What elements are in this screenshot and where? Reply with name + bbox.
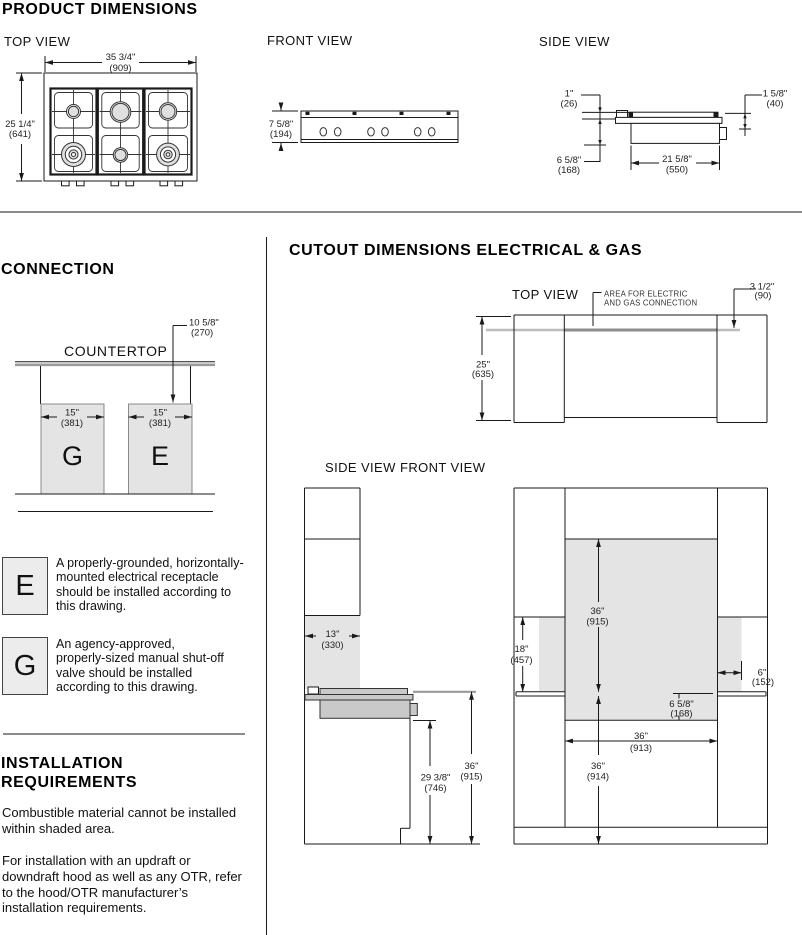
dim-cutout-depth-mm: (635) (472, 369, 494, 380)
spec-sheet-page: PRODUCT DIMENSIONS TOP VIEW FRONT VIEW S… (0, 0, 802, 935)
dim-g-width-mm: (381) (61, 418, 83, 429)
cutout-side-view-drawing: 13" (330) 29 3/8" (746) 36" (915) (305, 488, 483, 844)
dim-drop-mm: (270) (191, 328, 213, 339)
product-feet (62, 181, 183, 186)
dim-front-below-mm: (168) (670, 709, 692, 720)
dim-g-width-in: 15" (65, 408, 79, 419)
dim-side-cab-mm: (746) (424, 783, 446, 794)
dim-top-depth-mm: (641) (9, 129, 31, 140)
dim-front-height-mm: (914) (587, 772, 609, 783)
dim-front-height-mm: (194) (270, 129, 292, 140)
dim-side-height-mm: (915) (460, 772, 482, 783)
dim-front-clear-in: 18" (515, 644, 529, 655)
technical-drawing-canvas: 35 3/4" (909) 25 1/4" (641) (0, 0, 802, 935)
dim-side-cab-in: 29 3/8" (421, 773, 451, 784)
dim-cutout-offset-mm: (90) (755, 291, 772, 302)
dim-side-lip-mm: (26) (561, 99, 578, 110)
cutout-front-view-drawing: 18" (457) 36" (915) 36" (914) 6" (152) 6… (510, 488, 774, 844)
dim-front-clear-mm: (457) (510, 655, 532, 666)
product-front-view-drawing: 7 5/8" (194) (269, 104, 458, 151)
dim-e-width-mm: (381) (149, 418, 171, 429)
area-note-line1: AREA FOR ELECTRIC (604, 290, 688, 299)
dim-front-width-in: 36" (634, 731, 648, 742)
product-side-view-drawing: 1" (26) 6 5/8" (168) 1 5/8" (40) 21 5/8"… (557, 89, 788, 177)
dim-side-body-in: 21 5/8" (662, 154, 692, 165)
dim-side-shade-in: 13" (326, 629, 340, 640)
dim-side-height-in: 36" (465, 761, 479, 772)
connection-drawing: G E 15" (381) 15" (381) 10 5/8" (270) (15, 318, 219, 512)
dim-front-shade-mm: (915) (586, 617, 608, 628)
dim-front-height-in: 36" (591, 761, 605, 772)
dim-top-width-mm: (909) (109, 63, 131, 74)
cutout-top-view-drawing: 25" (635) 3 1/2" (90) AREA FOR ELECTRIC … (472, 282, 774, 423)
connection-g-letter: G (62, 441, 83, 471)
dim-side-body-mm: (550) (666, 165, 688, 176)
dim-e-width-in: 15" (153, 408, 167, 419)
connection-e-letter: E (151, 441, 169, 471)
area-note-line2: AND GAS CONNECTION (604, 299, 697, 308)
dim-side-shade-mm: (330) (321, 640, 343, 651)
dim-front-side-mm: (152) (752, 677, 774, 688)
product-top-view-drawing: 35 3/4" (909) 25 1/4" (641) (5, 52, 197, 186)
dim-side-trim-mm: (40) (767, 99, 784, 110)
dim-front-width-mm: (913) (630, 743, 652, 754)
dim-top-width-in: 35 3/4" (106, 52, 136, 63)
dim-side-back-mm: (168) (558, 165, 580, 176)
dim-front-shade-in: 36" (591, 606, 605, 617)
